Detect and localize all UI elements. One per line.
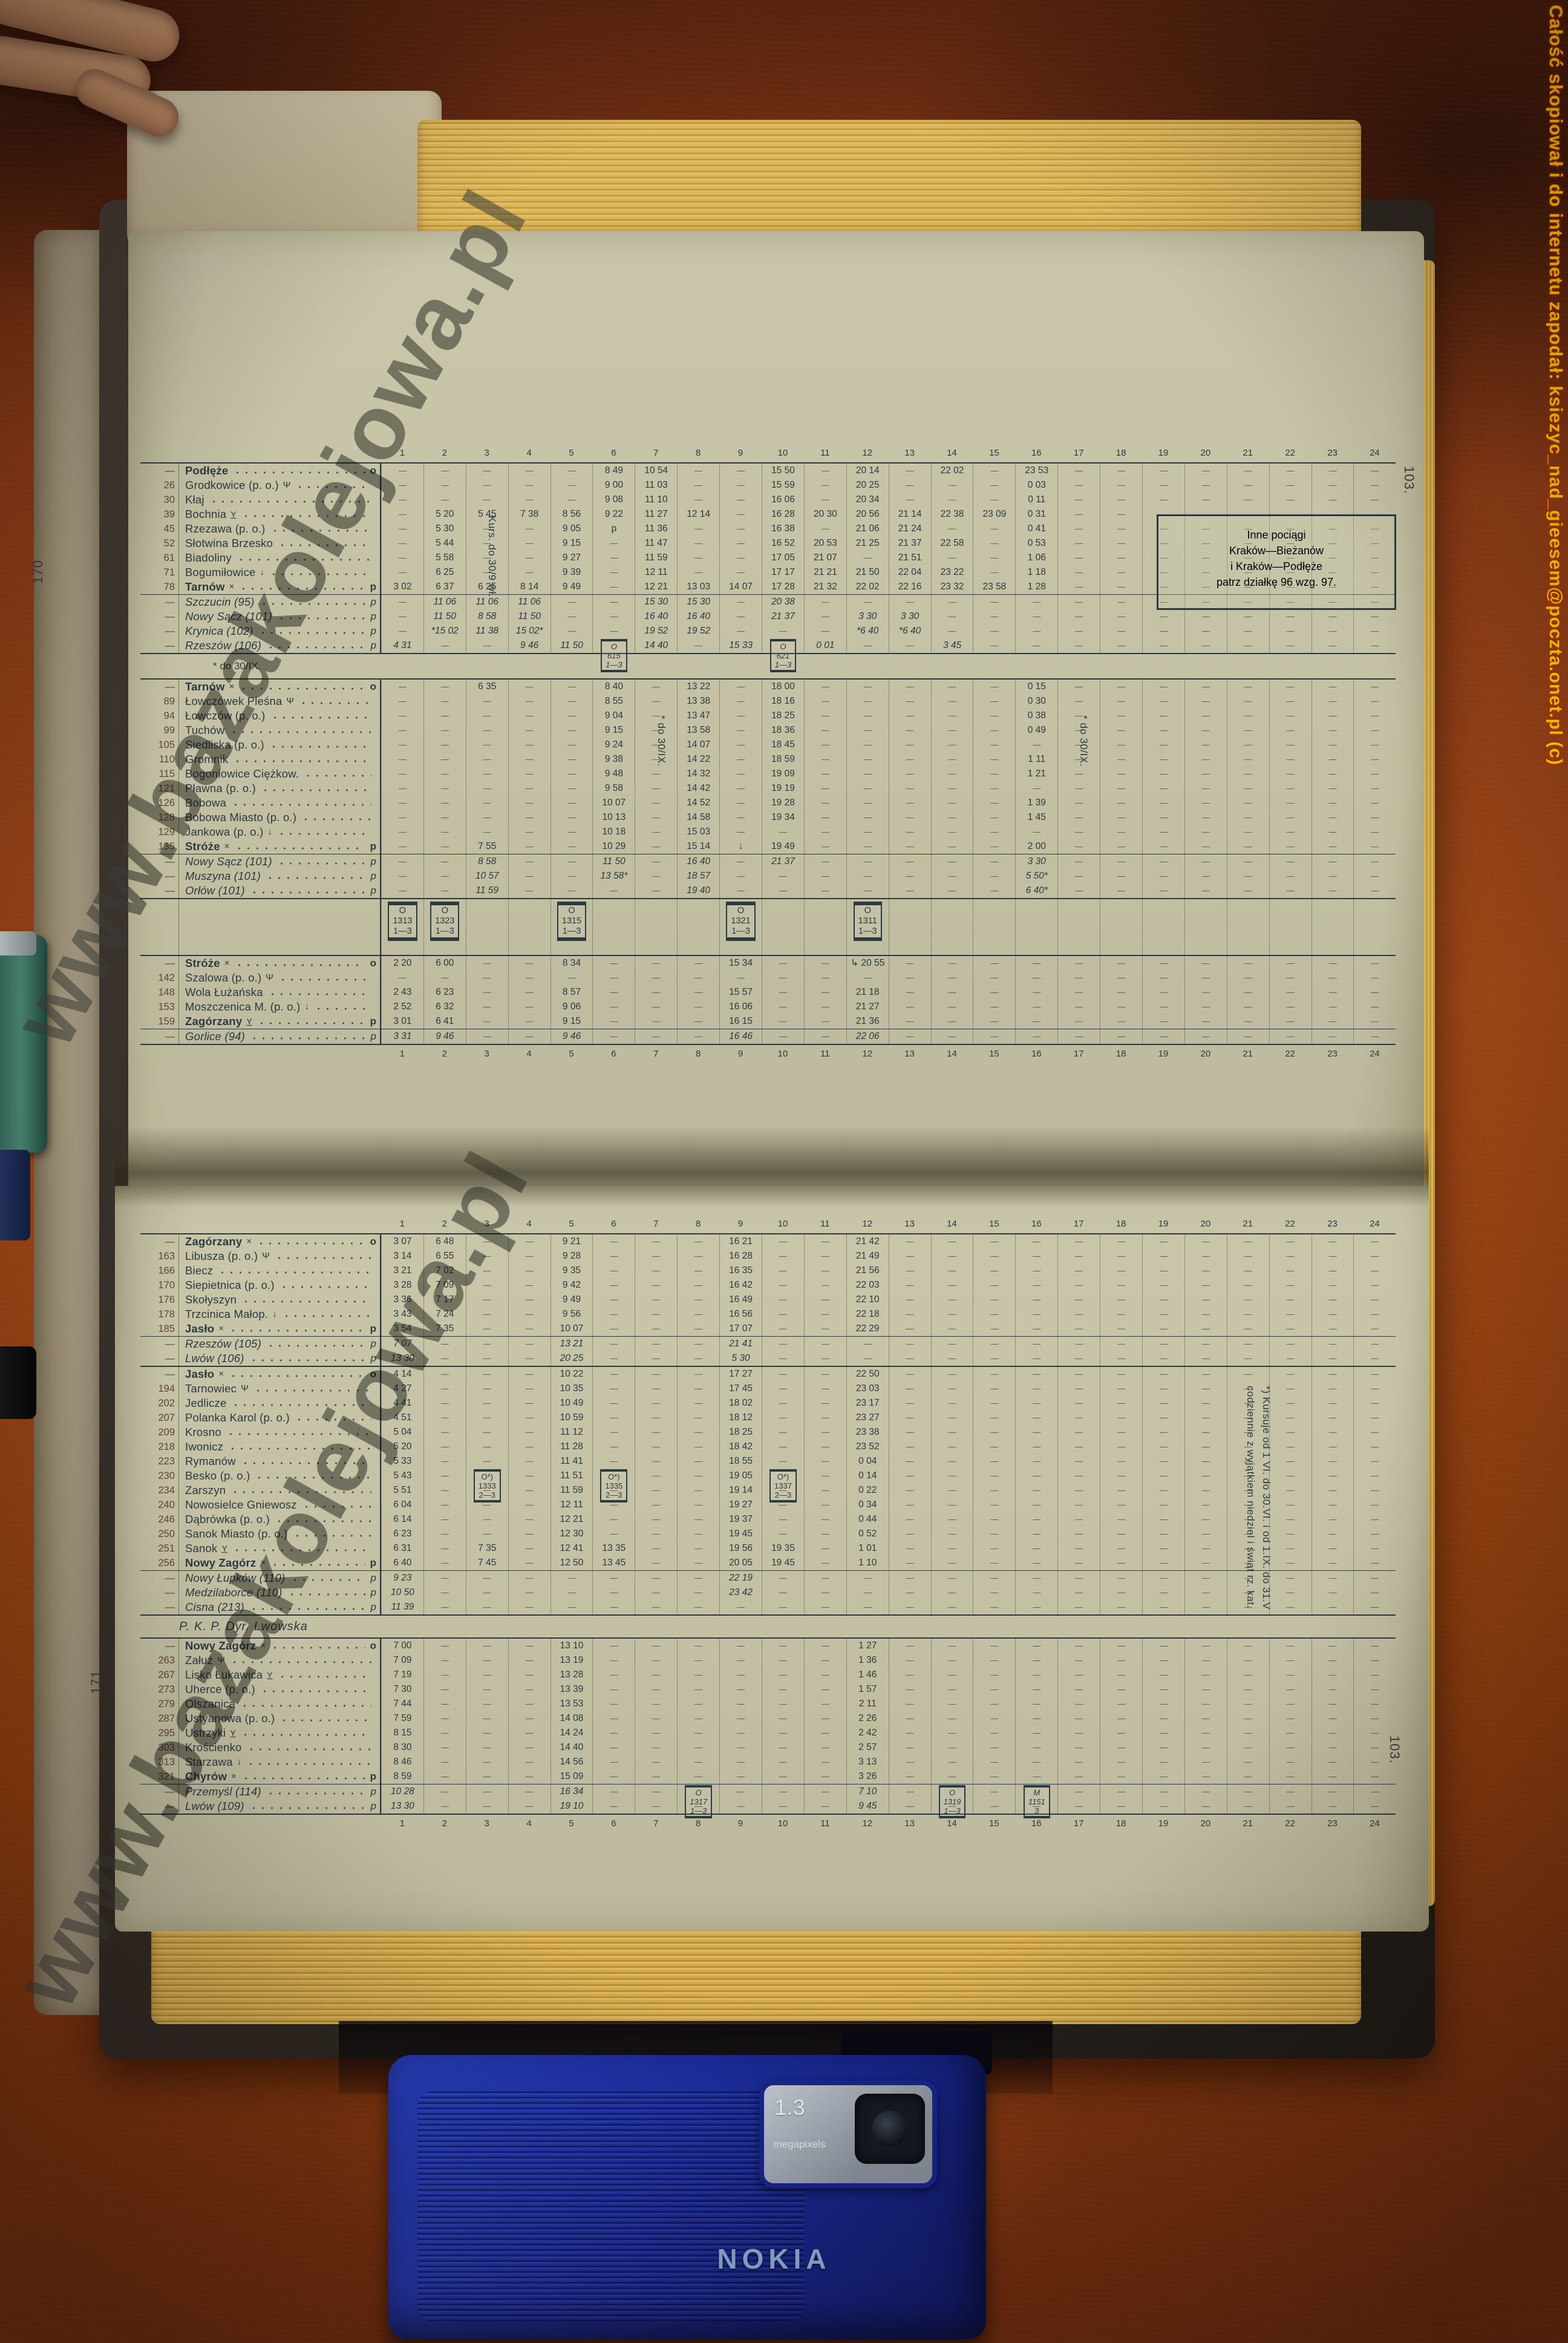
time-cell: — — [1353, 1469, 1396, 1483]
time-cell: — — [889, 854, 931, 869]
dot-leader — [233, 471, 365, 474]
time-cell: — — [466, 1784, 508, 1799]
time-cell: — — [1184, 680, 1227, 694]
time-cell: — — [1269, 1541, 1312, 1556]
time-cell: — — [1184, 956, 1227, 971]
time-cell: — — [1312, 1307, 1354, 1322]
column-header-row: 123456789101112131415161718192021222324 — [140, 1215, 1396, 1233]
time-cell: — — [931, 1769, 973, 1784]
time-cell: — — [719, 869, 762, 883]
time-cell: — — [1312, 1711, 1354, 1726]
train-box-line: 1311 — [858, 916, 877, 926]
time-cell: — — [973, 551, 1015, 565]
column-number: 2 — [423, 1045, 466, 1063]
station-name: Stróże — [185, 839, 220, 854]
column-number: 8 — [677, 444, 719, 462]
time-cell: — — [1227, 1014, 1269, 1029]
time-cell: 3 45 — [931, 638, 973, 653]
train-box-line: O — [944, 1788, 961, 1797]
time-cell: — — [635, 1000, 677, 1014]
time-cell: — — [1184, 1293, 1227, 1307]
time-cell: — — [889, 738, 931, 752]
column-footer-row: 123456789101112131415161718192021222324 — [140, 1045, 1396, 1063]
time-cell: 13 53 — [550, 1697, 593, 1711]
time-cell: — — [592, 1351, 635, 1366]
time-cell: — — [466, 1367, 508, 1381]
column-number: 17 — [1057, 1815, 1100, 1833]
feather-icon: Ψ — [283, 478, 291, 493]
time-cell: — — [973, 1293, 1015, 1307]
time-cell: 8 15 — [381, 1726, 423, 1740]
time-cell: 14 52 — [677, 796, 719, 810]
time-cell: — — [381, 796, 423, 810]
time-cell: — — [508, 1527, 550, 1541]
time-cell: — — [1100, 1600, 1142, 1614]
time-cell: — — [1100, 883, 1142, 898]
time-cell: — — [1353, 709, 1396, 723]
time-cell: 23 03 — [846, 1381, 889, 1396]
camera-megapixel-label: 1.3 — [775, 2095, 805, 2120]
dot-leader — [275, 1256, 371, 1260]
arrow-icon: ↓ — [272, 1307, 277, 1322]
time-cell: — — [1057, 1425, 1100, 1440]
time-cell: — — [889, 1293, 931, 1307]
time-cell: — — [1312, 1541, 1354, 1556]
time-cell: — — [1142, 781, 1184, 796]
train-box-line: 615 — [606, 651, 622, 660]
station-number: 110 — [140, 752, 179, 767]
time-cell: — — [973, 1396, 1015, 1411]
time-cell: 12 21 — [550, 1512, 593, 1527]
time-cell: — — [931, 854, 973, 869]
time-cell: — — [508, 1653, 550, 1668]
time-cell: 21 56 — [846, 1263, 889, 1278]
time-cell: 19 45 — [762, 1556, 804, 1570]
time-cell: — — [1312, 1293, 1354, 1307]
time-cell: — — [719, 1668, 762, 1682]
time-cell: — — [762, 1029, 804, 1044]
time-cell: — — [1227, 1351, 1269, 1366]
time-cell: — — [1227, 478, 1269, 493]
time-cell: — — [1057, 1600, 1100, 1614]
arrow-icon: ↓ — [267, 825, 272, 839]
time-cell: — — [1269, 1367, 1312, 1381]
time-cell: — — [550, 869, 593, 883]
time-cell: — — [635, 1668, 677, 1682]
dot-leader — [278, 1675, 371, 1679]
time-cell: — — [1057, 1278, 1100, 1293]
time-cell: — — [423, 883, 466, 898]
time-cell: — — [1312, 609, 1354, 624]
time-cell: 13 30 — [381, 1351, 423, 1366]
station-name-cell: Libusza (p. o.)Ψ — [179, 1249, 381, 1263]
time-cell: — — [762, 1639, 804, 1653]
time-cell: 13 58 — [677, 723, 719, 738]
time-cell: O6151—3 — [592, 638, 635, 653]
time-cell: — — [846, 738, 889, 752]
station-number: — — [140, 956, 179, 971]
time-cell: 18 25 — [719, 1425, 762, 1440]
time-cell: — — [1142, 609, 1184, 624]
time-cell: 10 13 — [592, 810, 635, 825]
time-cell: 22 02 — [931, 464, 973, 478]
time-cell: — — [1184, 624, 1227, 638]
time-cell: — — [973, 1600, 1015, 1614]
time-cell: — — [1142, 709, 1184, 723]
time-cell: 10 50 — [381, 1585, 423, 1600]
glass-icon: Y — [230, 507, 236, 522]
time-cell: — — [973, 825, 1015, 839]
time-cell: 15 14 — [677, 839, 719, 854]
column-number: 6 — [592, 1815, 635, 1833]
rotated-footnote: Kurs. do 30/9 wł. — [484, 516, 500, 618]
column-number: 1 — [381, 1815, 423, 1833]
table-row: 287Ustyanowa (p. o.)7 59———14 08——————2 … — [140, 1711, 1396, 1726]
station-number: — — [140, 883, 179, 898]
arrive-depart-mark: p — [371, 1585, 380, 1600]
time-cell: — — [889, 1000, 931, 1014]
station-number: 163 — [140, 1249, 179, 1263]
time-cell: — — [1100, 1498, 1142, 1512]
time-cell: — — [1184, 1799, 1227, 1814]
station-name-cell: BochniaY — [179, 507, 381, 522]
train-number-cell: O13151—3 — [550, 899, 593, 955]
time-cell: — — [1100, 869, 1142, 883]
table-row: 94Łowczów (p. o.)—————9 04—13 47—18 25——… — [140, 709, 1396, 723]
time-cell: — — [1269, 1769, 1312, 1784]
time-cell: — — [762, 1381, 804, 1396]
time-cell: 5 44 — [423, 536, 466, 551]
time-cell: 3 54 — [381, 1322, 423, 1336]
time-cell: — — [508, 1425, 550, 1440]
time-cell: 6 25 — [423, 565, 466, 580]
time-cell: — — [973, 1740, 1015, 1755]
time-cell: — — [1269, 854, 1312, 869]
time-cell: 7 55 — [466, 839, 508, 854]
column-number: 23 — [1312, 1215, 1354, 1233]
time-cell: — — [381, 709, 423, 723]
time-cell: — — [762, 1784, 804, 1799]
time-cell: — — [592, 883, 635, 898]
timetable-section: —Tarnów×o——6 35——8 40—13 22—18 00—————0 … — [140, 678, 1396, 854]
time-cell: 15 30 — [677, 595, 719, 609]
time-cell: 22 58 — [931, 536, 973, 551]
time-cell: — — [550, 609, 593, 624]
time-cell: — — [592, 1014, 635, 1029]
time-cell: — — [1184, 1784, 1227, 1799]
time-cell: 10 22 — [550, 1367, 593, 1381]
time-cell: — — [889, 723, 931, 738]
time-cell: — — [1269, 1425, 1312, 1440]
time-cell: — — [804, 796, 846, 810]
station-name-cell: ZagórzanyYp — [179, 1014, 381, 1029]
time-cell: — — [1057, 1307, 1100, 1322]
time-cell: — — [508, 522, 550, 536]
time-cell: 6 41 — [423, 1014, 466, 1029]
time-cell: — — [804, 1571, 846, 1585]
station-name: Biadoliny — [185, 551, 232, 565]
train-number-cell: O13131—3 — [381, 899, 423, 955]
time-cell: — — [466, 478, 508, 493]
time-cell: — — [1057, 609, 1100, 624]
time-cell: — — [973, 609, 1015, 624]
time-cell: — — [846, 839, 889, 854]
time-cell: — — [423, 723, 466, 738]
time-cell: — — [1057, 1454, 1100, 1469]
dot-leader — [269, 572, 371, 576]
time-cell: — — [635, 1381, 677, 1396]
time-cell: — — [1100, 1425, 1142, 1440]
station-name-cell: Uherce (p. o.) — [179, 1682, 381, 1697]
time-cell: 6 40* — [1015, 883, 1057, 898]
dot-leader — [277, 832, 371, 836]
time-cell: — — [1353, 738, 1396, 752]
time-cell: — — [1057, 1381, 1100, 1396]
dot-leader — [253, 1389, 371, 1392]
station-name-cell: Zagórzany×o — [179, 1234, 381, 1249]
time-cell: — — [1353, 1367, 1396, 1381]
time-cell: — — [1057, 839, 1100, 854]
time-cell: — — [1184, 1014, 1227, 1029]
column-number: 4 — [508, 1815, 550, 1833]
time-cell: 4 31 — [381, 638, 423, 653]
time-cell: — — [973, 956, 1015, 971]
page-number-label: 170 — [30, 560, 46, 584]
time-cell: 16 49 — [719, 1293, 762, 1307]
time-cell: — — [973, 694, 1015, 709]
table-row: 153Moszczenica M. (p. o.)↓2 526 32——9 06… — [140, 1000, 1396, 1014]
time-cell: — — [381, 595, 423, 609]
time-cell: — — [1100, 767, 1142, 781]
time-cell: — — [508, 1799, 550, 1814]
time-cell: — — [635, 839, 677, 854]
time-cell: — — [1142, 1249, 1184, 1263]
time-cell: — — [719, 464, 762, 478]
time-cell: — — [973, 1234, 1015, 1249]
time-cell: — — [931, 1000, 973, 1014]
time-cell: — — [931, 1293, 973, 1307]
time-cell: — — [973, 781, 1015, 796]
time-cell: — — [889, 1769, 931, 1784]
time-cell: — — [973, 1469, 1015, 1483]
time-cell: — — [1100, 624, 1142, 638]
time-cell: — — [635, 1726, 677, 1740]
time-cell: — — [466, 723, 508, 738]
time-cell: — — [1142, 1469, 1184, 1483]
time-cell: — — [1227, 624, 1269, 638]
time-cell: — — [889, 767, 931, 781]
time-cell: 1 10 — [846, 1556, 889, 1570]
station-number: — — [140, 595, 179, 609]
time-cell: 2 43 — [381, 985, 423, 1000]
time-cell: — — [1312, 1668, 1354, 1682]
time-cell: — — [1100, 825, 1142, 839]
time-cell: — — [762, 1571, 804, 1585]
time-cell: — — [550, 883, 593, 898]
time-cell: — — [1353, 1263, 1396, 1278]
arrive-depart-mark: p — [370, 1014, 380, 1029]
dot-leader — [266, 876, 366, 880]
station-number: 250 — [140, 1527, 179, 1541]
time-cell: — — [973, 1726, 1015, 1740]
time-cell: — — [1057, 985, 1100, 1000]
time-cell: — — [1100, 839, 1142, 854]
time-cell: — — [1353, 1668, 1396, 1682]
time-cell: — — [1015, 624, 1057, 638]
train-number-cell — [1312, 899, 1354, 955]
time-cell: — — [423, 709, 466, 723]
time-cell: — — [1184, 478, 1227, 493]
time-cell: — — [677, 1411, 719, 1425]
time-cell: — — [508, 1668, 550, 1682]
time-cell: — — [1353, 624, 1396, 638]
time-cell: — — [677, 1600, 719, 1614]
time-cell: — — [804, 883, 846, 898]
time-cell: — — [1184, 810, 1227, 825]
station-name-cell: Muszyna (101)p — [179, 869, 381, 883]
time-cell: — — [550, 854, 593, 869]
time-cell: 10 29 — [592, 839, 635, 854]
time-cell: 21 27 — [846, 1000, 889, 1014]
time-cell: — — [762, 956, 804, 971]
time-cell: — — [1015, 1755, 1057, 1769]
station-name: Jasło — [185, 1322, 214, 1336]
time-cell: — — [762, 1454, 804, 1469]
station-name: Szczucin (95) — [185, 595, 255, 609]
time-cell: — — [1269, 1351, 1312, 1366]
time-cell: 23 52 — [846, 1440, 889, 1454]
time-cell: — — [677, 985, 719, 1000]
train-number-cell — [1353, 899, 1396, 955]
time-cell: 19 34 — [762, 810, 804, 825]
time-cell: 23 27 — [846, 1411, 889, 1425]
time-cell: — — [508, 680, 550, 694]
copyright-watermark-text: Całość skopiował i do internetu zapodał:… — [1545, 5, 1566, 2335]
time-cell: — — [931, 796, 973, 810]
time-cell: — — [804, 1527, 846, 1541]
time-cell: — — [508, 825, 550, 839]
time-cell: 5 43 — [381, 1469, 423, 1483]
time-cell: — — [381, 478, 423, 493]
page-171: 123456789101112131415161718192021222324—… — [115, 1186, 1429, 1932]
time-cell: — — [1312, 1726, 1354, 1740]
time-cell: — — [889, 1396, 931, 1411]
column-number: 5 — [550, 1215, 593, 1233]
train-box-line: 1—3 — [858, 926, 877, 937]
dot-leader — [257, 1021, 365, 1025]
time-cell: — — [466, 1278, 508, 1293]
station-name: Zagórzany — [185, 1234, 242, 1249]
time-cell: — — [889, 1527, 931, 1541]
column-number: 7 — [635, 1815, 677, 1833]
time-cell: — — [550, 624, 593, 638]
time-cell: — — [719, 781, 762, 796]
time-cell: 16 40 — [677, 854, 719, 869]
time-cell: — — [719, 1639, 762, 1653]
time-cell: — — [466, 1639, 508, 1653]
time-cell: — — [423, 781, 466, 796]
time-cell: — — [508, 971, 550, 985]
time-cell: — — [635, 1014, 677, 1029]
time-cell: — — [719, 624, 762, 638]
table-row: —Krynica (102)p—*15 0211 3815 02*——19 52… — [140, 624, 1396, 638]
time-cell: — — [804, 1278, 846, 1293]
time-cell: 11 06 — [508, 595, 550, 609]
time-cell: — — [635, 1322, 677, 1336]
time-cell: — — [1227, 1740, 1269, 1755]
dot-leader — [278, 543, 371, 547]
column-number: 7 — [635, 1045, 677, 1063]
time-cell: — — [1142, 1541, 1184, 1556]
time-cell: — — [762, 1483, 804, 1498]
station-name-cell: Iwonicz — [179, 1440, 381, 1454]
time-cell: — — [1312, 478, 1354, 493]
station-number: 178 — [140, 1307, 179, 1322]
time-cell: 3 07 — [381, 1234, 423, 1249]
time-cell: — — [931, 738, 973, 752]
time-cell: — — [466, 1381, 508, 1396]
column-number: 3 — [466, 1045, 508, 1063]
time-cell: — — [508, 1396, 550, 1411]
column-number: 23 — [1312, 1815, 1354, 1833]
time-cell: 11 50 — [508, 609, 550, 624]
station-number: 45 — [140, 522, 179, 536]
time-cell: 3 28 — [381, 1278, 423, 1293]
time-cell: — — [677, 1000, 719, 1014]
time-cell: — — [804, 1600, 846, 1614]
time-cell: — — [1353, 1527, 1396, 1541]
time-cell: — — [1269, 609, 1312, 624]
time-cell: 10 49 — [550, 1396, 593, 1411]
time-cell: — — [889, 1639, 931, 1653]
time-cell: — — [550, 694, 593, 709]
time-cell: — — [931, 1249, 973, 1263]
time-cell: — — [1269, 1440, 1312, 1454]
hand — [0, 0, 296, 145]
time-cell: — — [508, 854, 550, 869]
time-cell: 7 30 — [381, 1682, 423, 1697]
time-cell: — — [1057, 1697, 1100, 1711]
station-name: Siepietnica (p. o.) — [185, 1278, 275, 1293]
time-cell: — — [762, 1014, 804, 1029]
time-cell: 14 08 — [550, 1711, 593, 1726]
time-cell: — — [1184, 1278, 1227, 1293]
time-cell: 21 21 — [804, 565, 846, 580]
time-cell: — — [1184, 1668, 1227, 1682]
time-cell: — — [1015, 1556, 1057, 1570]
time-cell: — — [423, 1711, 466, 1726]
station-name-cell: Szczucin (95)p — [179, 595, 381, 609]
dot-leader — [229, 1329, 365, 1332]
time-cell: — — [1353, 1293, 1396, 1307]
station-name: Bobowa — [185, 796, 226, 810]
time-cell: — — [1312, 1527, 1354, 1541]
time-cell: — — [1269, 781, 1312, 796]
time-cell: 5 33 — [381, 1454, 423, 1469]
station-number: 176 — [140, 1293, 179, 1307]
time-cell: — — [1269, 638, 1312, 653]
time-cell: — — [1312, 1682, 1354, 1697]
time-cell: — — [1184, 752, 1227, 767]
time-cell: — — [423, 1556, 466, 1570]
time-cell: — — [423, 638, 466, 653]
time-cell: — — [973, 1711, 1015, 1726]
time-cell: 0 41 — [1015, 522, 1057, 536]
time-cell: — — [1057, 971, 1100, 985]
time-cell: — — [1269, 1337, 1312, 1351]
time-cell: — — [1015, 1234, 1057, 1249]
station-number: 148 — [140, 985, 179, 1000]
